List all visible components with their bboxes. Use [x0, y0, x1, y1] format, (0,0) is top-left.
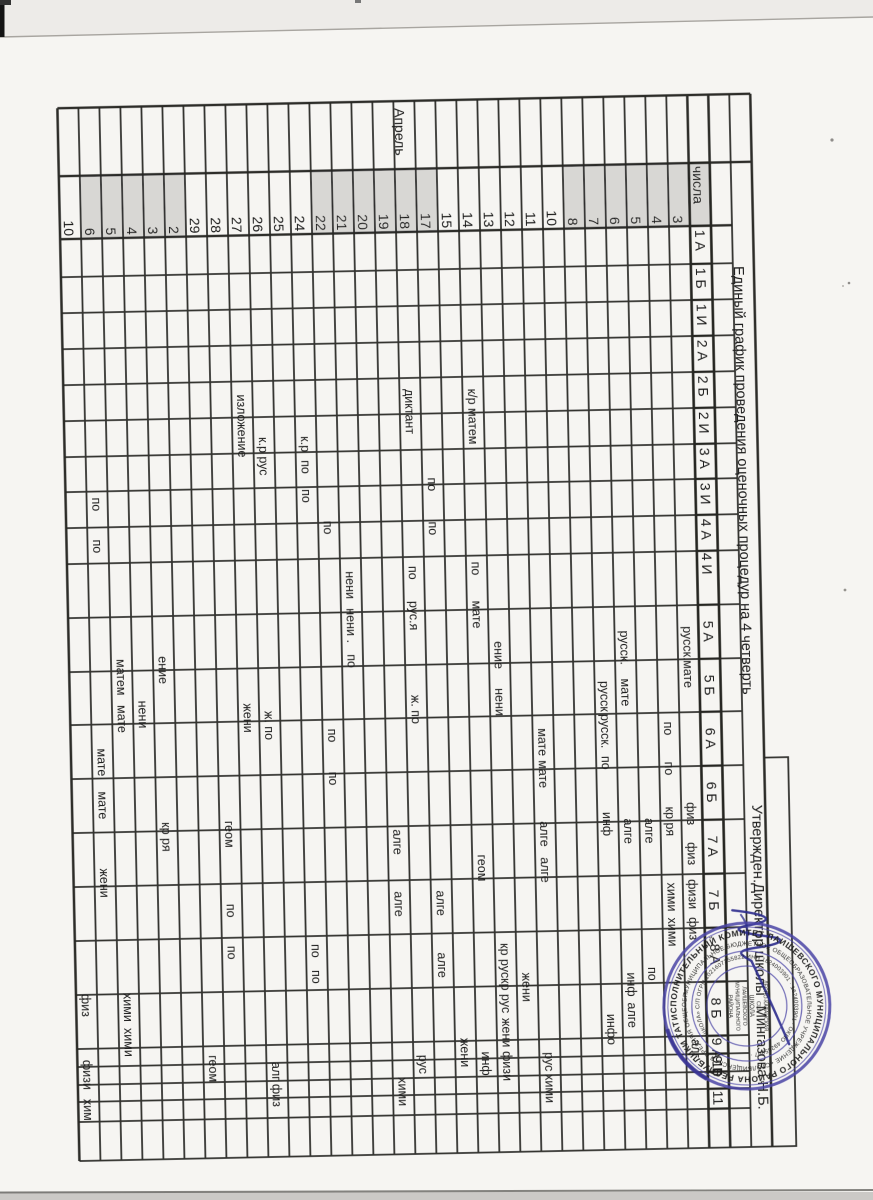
- svg-text:4: 4: [649, 216, 665, 224]
- svg-text:1 Б: 1 Б: [693, 268, 709, 289]
- svg-text:нени: нени: [343, 571, 358, 599]
- svg-text:физ: физ: [269, 1084, 283, 1108]
- svg-text:по: по: [426, 521, 440, 535]
- svg-text:мате: мате: [681, 660, 696, 688]
- svg-text:хими: хими: [542, 1074, 557, 1103]
- svg-text:алге: алге: [642, 818, 657, 844]
- svg-text:по: по: [425, 477, 439, 491]
- svg-text:2: 2: [166, 226, 182, 234]
- svg-text:21: 21: [334, 215, 350, 231]
- svg-text:хими: хими: [395, 1077, 410, 1106]
- svg-text:ж. по: ж. по: [408, 695, 423, 724]
- svg-text:по: по: [299, 489, 313, 503]
- svg-text:по: по: [309, 970, 323, 984]
- svg-text:геом: геом: [206, 1055, 221, 1082]
- svg-text:по: по: [298, 460, 312, 474]
- svg-text:нени .: нени .: [343, 608, 358, 643]
- svg-text:хими: хими: [120, 993, 135, 1022]
- svg-text:хими: хими: [665, 917, 680, 946]
- svg-text:5: 5: [103, 227, 119, 235]
- svg-text:8: 8: [565, 218, 581, 226]
- svg-text:геом: геом: [222, 821, 237, 848]
- svg-text:3: 3: [145, 226, 161, 234]
- svg-text:инфо: инфо: [604, 1014, 619, 1045]
- svg-text:ж. по: ж. по: [262, 711, 277, 740]
- svg-text:числа: числа: [690, 166, 707, 205]
- svg-text:по: по: [662, 761, 676, 775]
- svg-text:по: по: [645, 967, 659, 981]
- svg-text:по: по: [224, 946, 238, 960]
- svg-text:19: 19: [376, 214, 392, 230]
- svg-text:физи: физи: [80, 1060, 95, 1090]
- svg-text:алге: алге: [538, 857, 553, 883]
- svg-text:6: 6: [82, 228, 98, 236]
- svg-text:мате: мате: [618, 678, 633, 706]
- svg-text:матем: матем: [113, 659, 128, 696]
- svg-text:11: 11: [710, 1090, 726, 1105]
- svg-text:27: 27: [229, 217, 245, 233]
- svg-text:15: 15: [439, 212, 455, 228]
- svg-text:изложение: изложение: [234, 394, 249, 457]
- svg-text:нени: нени: [135, 700, 150, 728]
- svg-text:физ: физ: [78, 994, 92, 1018]
- svg-text:11: 11: [523, 212, 539, 227]
- svg-text:ЛЕСНО-КАЗАНСКАЯ: ЛЕСНО-КАЗАНСКАЯ: [761, 980, 768, 1031]
- svg-text:8 Б: 8 Б: [708, 997, 724, 1018]
- svg-text:7: 7: [586, 217, 602, 225]
- svg-text:физ: физ: [684, 842, 698, 866]
- svg-text:жени: жени: [457, 1038, 472, 1068]
- svg-text:4 И: 4 И: [699, 553, 715, 575]
- svg-text:1 И: 1 И: [694, 304, 710, 326]
- svg-text:мате: мате: [95, 791, 110, 819]
- svg-text:28: 28: [208, 217, 224, 233]
- svg-text:4 А: 4 А: [698, 519, 714, 541]
- svg-text:инф: инф: [624, 972, 639, 996]
- svg-text:29: 29: [187, 218, 203, 234]
- svg-text:жени: жени: [97, 868, 112, 898]
- svg-text:русск.: русск.: [617, 630, 632, 665]
- svg-text:по: по: [468, 561, 482, 575]
- svg-text:3: 3: [670, 215, 686, 223]
- svg-text:6 А: 6 А: [703, 728, 719, 750]
- svg-text:2 И: 2 И: [696, 412, 712, 434]
- svg-text:13: 13: [481, 212, 497, 228]
- svg-text:22: 22: [313, 215, 329, 231]
- svg-text:нени: нени: [492, 688, 507, 716]
- svg-text:алге: алге: [391, 891, 406, 917]
- svg-text:по: по: [90, 539, 104, 553]
- svg-text:геом: геом: [475, 854, 490, 881]
- svg-text:хими: хими: [664, 882, 679, 911]
- svg-text:20: 20: [355, 214, 371, 230]
- svg-text:7 Б: 7 Б: [706, 890, 722, 911]
- svg-text:ение: ение: [491, 641, 506, 669]
- svg-text:алге: алге: [390, 829, 405, 855]
- svg-text:3 А: 3 А: [697, 448, 713, 470]
- svg-text:3 И: 3 И: [697, 483, 713, 505]
- svg-text:10: 10: [61, 220, 77, 236]
- svg-text:по: по: [344, 654, 358, 668]
- svg-text:алге: алге: [625, 1002, 640, 1028]
- svg-text:по: по: [321, 521, 335, 535]
- svg-text:2 Б: 2 Б: [695, 376, 711, 397]
- svg-text:6: 6: [607, 217, 623, 225]
- svg-text:12: 12: [502, 211, 518, 227]
- svg-text:диктант: диктант: [402, 389, 417, 435]
- svg-text:ШКОЛА: ШКОЛА: [748, 995, 755, 1018]
- svg-text:мате: мате: [535, 728, 550, 756]
- svg-text:рус: рус: [542, 1052, 556, 1071]
- svg-text:Апрель: Апрель: [391, 108, 408, 156]
- svg-text:кр рус: кр рус: [497, 943, 512, 978]
- svg-text:кр ря: кр ря: [663, 806, 678, 836]
- svg-text:по: по: [661, 721, 675, 735]
- svg-text:физ: физ: [684, 802, 698, 826]
- svg-text:русск: русск: [597, 681, 612, 713]
- svg-text:7 А: 7 А: [705, 836, 721, 858]
- svg-text:2 А: 2 А: [694, 340, 710, 362]
- svg-text:25: 25: [271, 216, 287, 232]
- svg-text:МУНИЦИПАЛЬНОГО: МУНИЦИПАЛЬНОГО: [733, 982, 740, 1031]
- svg-text:ение: ение: [155, 656, 170, 684]
- svg-text:алге: алге: [435, 952, 450, 978]
- svg-text:6 Б: 6 Б: [704, 782, 720, 803]
- svg-text:26: 26: [250, 216, 266, 232]
- svg-text:18: 18: [397, 213, 413, 229]
- svg-text:ЛАИШЕВСКОГО: ЛАИШЕВСКОГО: [740, 986, 747, 1026]
- svg-text:по: по: [224, 904, 238, 918]
- svg-text:по: по: [406, 566, 420, 580]
- svg-text:алг: алг: [269, 1062, 283, 1082]
- svg-text:по: по: [308, 944, 322, 958]
- svg-text:5 Б: 5 Б: [701, 675, 717, 696]
- svg-text:жени: жени: [519, 972, 534, 1002]
- svg-text:24: 24: [292, 215, 308, 231]
- svg-text:по: по: [599, 756, 613, 770]
- svg-text:1 А: 1 А: [692, 230, 708, 252]
- svg-text:инф: инф: [479, 1051, 494, 1075]
- svg-text:5: 5: [628, 216, 644, 224]
- svg-text:русск.: русск.: [598, 714, 613, 749]
- svg-text:к.р рус: к.р рус: [256, 437, 271, 476]
- svg-text:10: 10: [544, 210, 560, 226]
- svg-text:физи: физи: [500, 1051, 515, 1081]
- svg-text:жени: жени: [499, 1018, 514, 1048]
- svg-text:по: по: [326, 771, 340, 785]
- svg-text:мате: мате: [94, 748, 109, 776]
- svg-text:14: 14: [460, 212, 476, 228]
- svg-text:17: 17: [418, 213, 434, 229]
- svg-text:физи: физи: [685, 879, 700, 909]
- svg-text:хими: хими: [121, 1028, 136, 1057]
- svg-text:к/р матем: к/р матем: [465, 389, 480, 445]
- svg-text:мате: мате: [536, 760, 551, 788]
- svg-text:кр рус: кр рус: [498, 978, 513, 1013]
- svg-text:алге: алге: [433, 890, 448, 916]
- svg-text:рус.я: рус.я: [406, 601, 421, 631]
- svg-text:алге: алге: [621, 818, 636, 844]
- svg-text:кр ря: кр ря: [159, 822, 174, 852]
- svg-text:русск.: русск.: [680, 626, 695, 661]
- svg-text:жени: жени: [240, 703, 255, 733]
- svg-text:алге: алге: [537, 821, 552, 847]
- svg-text:4: 4: [124, 227, 140, 235]
- svg-text:мате: мате: [469, 600, 484, 628]
- svg-text:по: по: [89, 497, 103, 511]
- svg-text:по: по: [325, 729, 339, 743]
- svg-text:рус: рус: [416, 1055, 430, 1074]
- svg-text:инф: инф: [600, 812, 615, 836]
- svg-text:5 А: 5 А: [700, 621, 716, 643]
- svg-text:хим: хим: [81, 1099, 95, 1121]
- svg-text:мате: мате: [114, 705, 129, 733]
- svg-text:к.р: к.р: [298, 436, 312, 452]
